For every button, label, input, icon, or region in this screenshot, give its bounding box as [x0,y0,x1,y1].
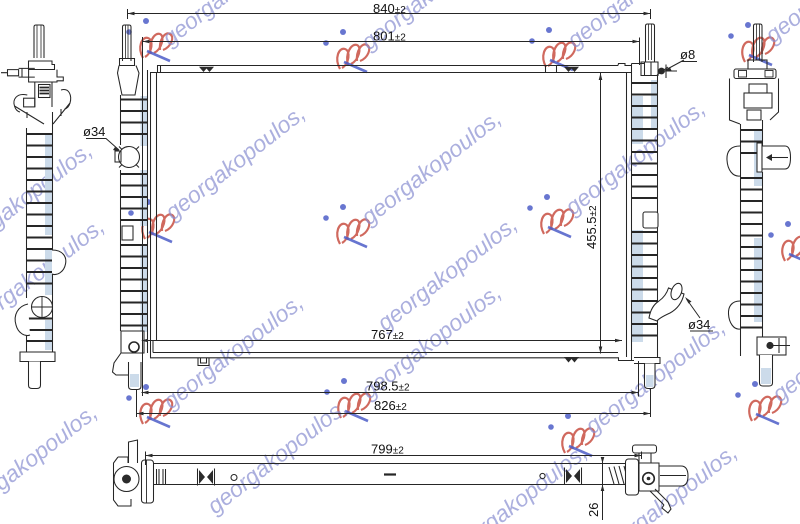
svg-text:798.5±2: 798.5±2 [366,379,410,394]
svg-text:ø34: ø34 [688,317,710,332]
svg-text:georgakopoulos,: georgakopoulos, [160,100,310,225]
svg-text:ø34: ø34 [83,124,105,139]
svg-text:georgakopoulos,: georgakopoulos, [157,0,307,51]
svg-text:georgakopoulos,: georgakopoulos, [356,105,506,230]
svg-text:georgakopoulos,: georgakopoulos, [158,289,308,414]
svg-text:georgakopoulos,: georgakopoulos, [0,399,102,524]
svg-text:826±2: 826±2 [374,398,407,413]
svg-text:georgakopoulos,: georgakopoulos, [202,394,352,519]
svg-text:georgakopoulos,: georgakopoulos, [562,0,712,53]
svg-text:georgakopoulos,: georgakopoulos, [442,439,592,524]
svg-text:ø8: ø8 [680,47,695,62]
svg-text:767±2: 767±2 [371,327,404,342]
svg-text:799±2: 799±2 [371,442,404,457]
svg-text:26: 26 [586,503,601,517]
